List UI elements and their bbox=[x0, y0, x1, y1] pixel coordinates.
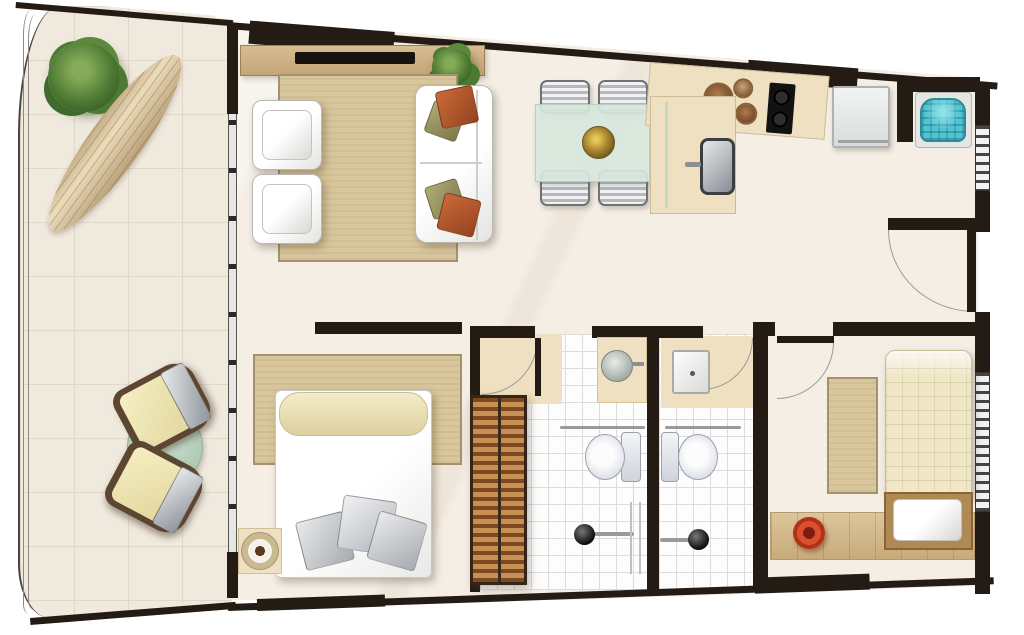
bathroom-1-door-leaf bbox=[535, 338, 541, 396]
decor-bowl bbox=[734, 102, 758, 126]
sofa-pillow-orange bbox=[434, 84, 479, 129]
louver-closet-door bbox=[470, 395, 527, 585]
bathroom-2-drain bbox=[690, 371, 695, 376]
bedroom-2-top-wall-a bbox=[763, 322, 775, 336]
red-pouf bbox=[793, 517, 825, 549]
bathroom-1-faucet bbox=[632, 362, 644, 366]
kitchen-faucet bbox=[685, 162, 701, 167]
bathroom-divider-wall bbox=[647, 326, 659, 592]
entrance-door-leaf bbox=[967, 230, 976, 312]
round-speaker bbox=[241, 532, 279, 570]
master-bed-bolster bbox=[279, 392, 428, 436]
single-bed-quilt bbox=[885, 350, 972, 496]
bathroom-1-glass-screen bbox=[639, 502, 641, 574]
bathroom-1-glass-screen bbox=[630, 502, 632, 574]
armchair-cushion bbox=[262, 184, 312, 234]
bathroom-2-shower-head bbox=[688, 529, 709, 550]
refrigerator bbox=[832, 86, 890, 148]
service-inner-top-wall bbox=[905, 77, 980, 92]
armchair bbox=[252, 174, 322, 244]
kitchen-sink bbox=[700, 138, 735, 195]
laundry-tub bbox=[920, 98, 966, 142]
living-bedroom-wall bbox=[315, 322, 462, 334]
bathroom-2-towel-rail bbox=[665, 426, 741, 429]
bedroom-2-window bbox=[975, 372, 990, 512]
cooktop bbox=[766, 82, 796, 134]
left-wall-segment bbox=[227, 24, 238, 114]
bathroom-top-wall-a bbox=[470, 326, 535, 338]
burner bbox=[771, 111, 788, 128]
service-window bbox=[975, 125, 990, 191]
tv bbox=[295, 52, 415, 64]
bedroom-2-rug bbox=[827, 377, 878, 494]
balcony-plant bbox=[48, 42, 120, 112]
bedroom-2-door-leaf bbox=[777, 336, 834, 343]
single-bed-frame bbox=[884, 492, 973, 550]
kitchen-backsplash-shelf bbox=[665, 102, 668, 208]
single-bed-pillow bbox=[893, 499, 962, 541]
armchair-cushion bbox=[262, 110, 312, 160]
bathroom-1-basin bbox=[601, 350, 633, 382]
bathroom-2-basin bbox=[672, 350, 710, 394]
bathroom-1-screen-rail bbox=[560, 426, 645, 429]
bathroom-1-shower-head bbox=[574, 524, 595, 545]
burner bbox=[773, 89, 790, 106]
bathroom-right-wall bbox=[753, 322, 768, 592]
sofa-seat-line bbox=[420, 162, 482, 164]
louver-divider bbox=[498, 398, 501, 582]
bathroom-2-toilet-tank bbox=[661, 432, 679, 482]
floor-plan bbox=[0, 0, 1024, 635]
left-wall-segment bbox=[227, 552, 238, 598]
hall-top-wall bbox=[888, 218, 978, 230]
refrigerator-handle bbox=[838, 140, 888, 143]
balcony-glass-facade-line bbox=[28, 14, 36, 610]
bathroom-1-shower-rail bbox=[592, 532, 634, 536]
fruit-bowl bbox=[582, 126, 615, 159]
bathroom-1-toilet-bowl bbox=[585, 434, 625, 480]
bedroom-2-top-wall-b bbox=[833, 322, 975, 336]
bathroom-2-toilet-bowl bbox=[678, 434, 718, 480]
armchair bbox=[252, 100, 322, 170]
